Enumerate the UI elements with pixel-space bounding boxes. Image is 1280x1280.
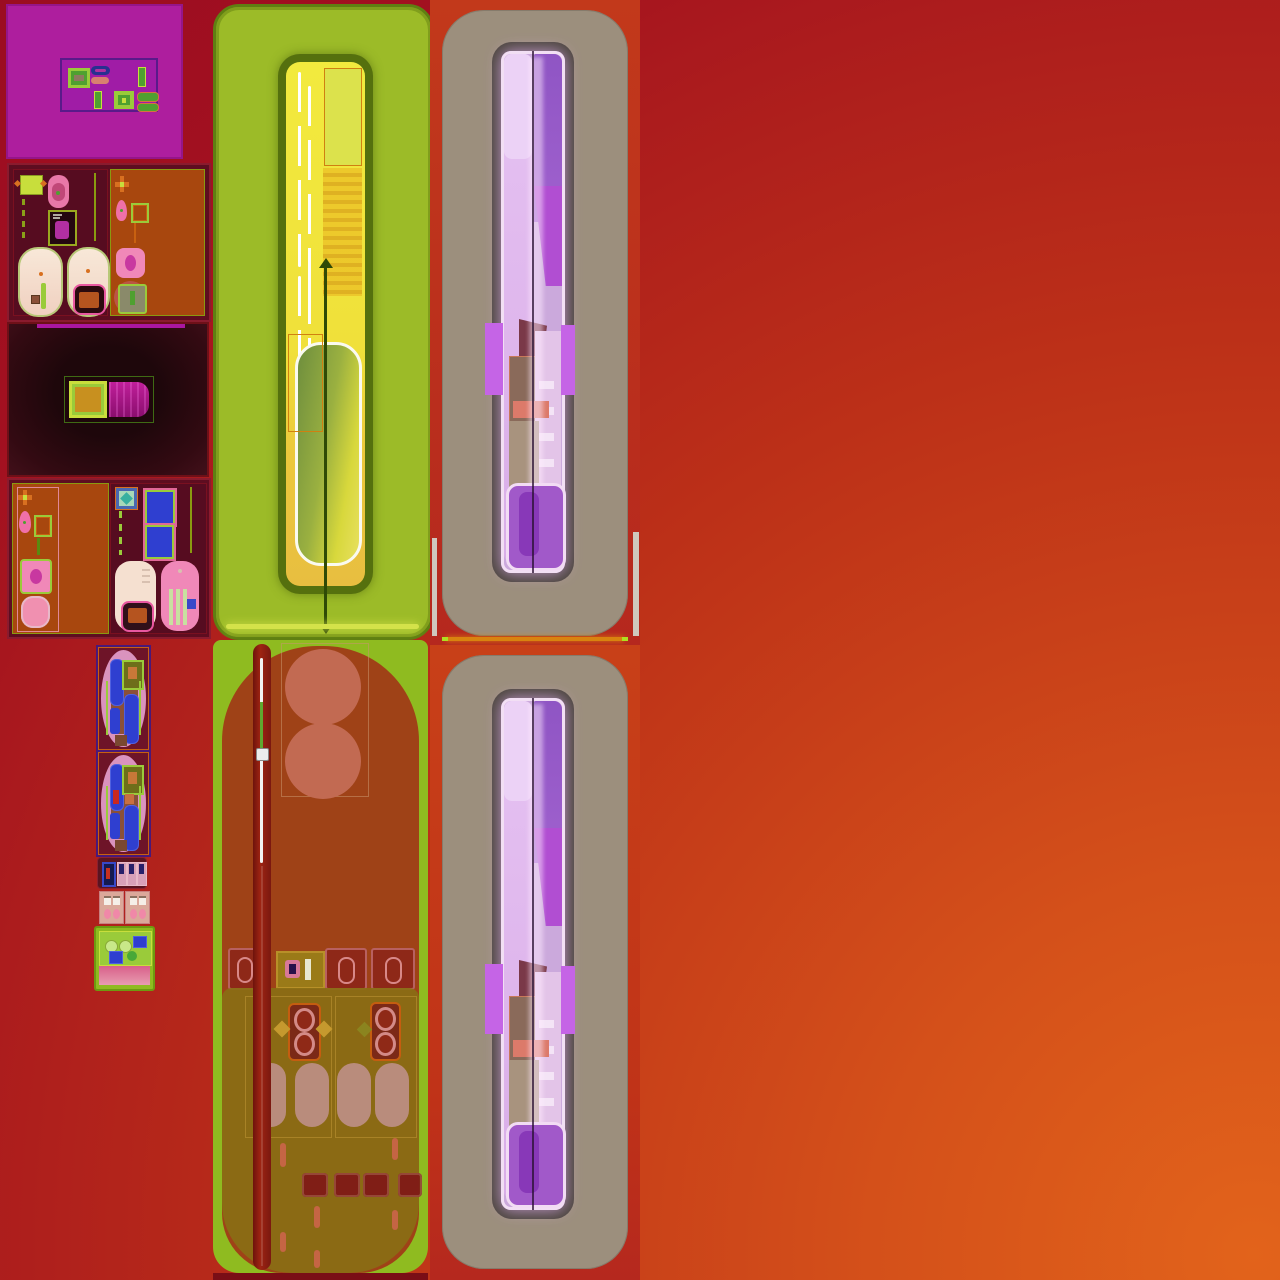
silver-edge-strip	[432, 538, 437, 636]
stick-track-faint	[261, 866, 263, 1266]
cap-rod	[519, 1131, 539, 1193]
outline-box-icon	[131, 203, 149, 223]
stick-green-segment	[260, 702, 263, 748]
panel-glow-line	[226, 624, 419, 629]
appliance-capsule-1	[18, 247, 63, 317]
concentric-core	[122, 98, 126, 103]
text-line	[53, 214, 62, 216]
slider-track-line[interactable]	[308, 86, 311, 316]
sprite-dial-panel	[99, 891, 124, 924]
panel2-left-section	[12, 483, 109, 634]
square-button-face	[71, 71, 87, 85]
module-slot	[130, 291, 135, 305]
panel2-right-section	[110, 483, 207, 634]
stick-handle[interactable]	[256, 748, 269, 761]
bar-wing-left	[485, 323, 503, 395]
leaf-dot	[23, 521, 26, 524]
magenta-widget-panel	[6, 4, 183, 159]
green-rail	[106, 681, 108, 735]
dark-key[interactable]	[334, 1173, 360, 1197]
vertical-rule	[94, 173, 96, 241]
leaf-icon	[116, 200, 127, 221]
dark-toggle-panel	[7, 322, 209, 477]
mini-readout	[113, 896, 120, 905]
bar-wing-right	[561, 966, 575, 1034]
salmon-circle	[285, 649, 361, 725]
gray-oval-key[interactable]	[295, 1063, 329, 1127]
slot-core	[139, 864, 144, 874]
square-button-icon[interactable]	[68, 68, 90, 88]
green-rail	[139, 681, 141, 735]
appliance-capsule-3	[115, 561, 156, 631]
pill-stripe	[95, 69, 106, 72]
bar-bottom-cap	[506, 483, 566, 571]
dark-key[interactable]	[363, 1173, 389, 1197]
green-bar-icon-2	[94, 91, 102, 109]
pink-knob[interactable]	[139, 909, 146, 919]
pink-capsule-small	[21, 596, 50, 628]
red-stick-slider[interactable]	[253, 644, 271, 1270]
cap-rod	[519, 492, 539, 556]
appliance-capsule-4	[161, 561, 199, 631]
plus-core	[120, 182, 124, 187]
oval-outline	[338, 957, 355, 984]
orange-chip	[125, 794, 134, 804]
green-slot[interactable]	[41, 283, 46, 309]
divider-glow-line	[446, 637, 624, 641]
dash-mark	[280, 1232, 286, 1252]
text-line	[53, 217, 60, 219]
blob-oval	[125, 255, 136, 271]
blue-chip	[109, 951, 123, 964]
brown-chip	[115, 840, 127, 851]
gray-oval-key[interactable]	[337, 1063, 371, 1127]
double-knob-control[interactable]	[370, 1002, 401, 1061]
magenta-chip	[55, 221, 69, 239]
module-core	[128, 772, 137, 784]
board-bottom	[99, 966, 150, 985]
toggle-switch[interactable]	[65, 377, 153, 422]
dark-widget-box	[48, 210, 77, 246]
green-pill-icon-2	[137, 103, 159, 112]
silver-edge-strip	[633, 532, 639, 636]
atlas-stage	[0, 0, 1280, 1280]
concentric-inner	[118, 95, 130, 105]
bar-center-line	[532, 698, 534, 1210]
magenta-top-line	[37, 324, 185, 328]
pink-slot	[127, 862, 137, 886]
red-pin	[106, 868, 110, 879]
bar-left-cap	[504, 701, 532, 801]
sprite-dial-panel	[125, 891, 150, 924]
capsule-dot	[56, 191, 60, 195]
concentric-square-icon[interactable]	[114, 91, 134, 109]
violet-bar	[501, 51, 565, 573]
appliance-capsule-2	[67, 247, 110, 317]
orange-outline-box	[288, 334, 323, 432]
pink-blob-button[interactable]	[116, 248, 145, 278]
toggle-knob[interactable]	[69, 381, 107, 418]
lime-slider-panel	[213, 4, 434, 640]
pink-knob[interactable]	[104, 909, 111, 919]
salmon-circle	[285, 723, 361, 799]
appliance-sprite-panel-1	[7, 163, 211, 322]
appliance-sprite-panel-2	[7, 478, 211, 639]
pink-knob[interactable]	[113, 909, 120, 919]
panel1-left-section	[13, 169, 108, 316]
dark-key[interactable]	[398, 1173, 422, 1197]
mini-readout	[104, 896, 111, 905]
slider-track-line[interactable]	[298, 72, 301, 267]
capsule-door[interactable]	[121, 601, 154, 632]
cell-oval	[371, 948, 415, 990]
oval-outline	[237, 957, 253, 983]
sprite-green-board	[94, 926, 155, 991]
indicator-dot	[86, 269, 90, 273]
bar-wing-right	[561, 325, 575, 395]
vertical-rule	[37, 538, 40, 555]
scroll-axis[interactable]	[324, 268, 327, 626]
widget-box	[60, 58, 158, 112]
deck-bottom-strip	[213, 1273, 428, 1280]
plus-core	[23, 495, 27, 500]
sprite-card-b	[96, 750, 151, 857]
violet-bar-frame	[492, 42, 574, 582]
board-top	[99, 931, 152, 966]
slot-core	[119, 864, 124, 874]
green-dot	[127, 951, 137, 961]
tan-body	[442, 10, 628, 636]
blue-slot-button-2[interactable]	[145, 525, 174, 559]
stripe-group	[169, 589, 173, 625]
cell-oval	[325, 948, 367, 990]
arrow-up-icon[interactable]	[319, 258, 333, 268]
blue-chip	[110, 813, 120, 839]
vertical-rule	[134, 223, 136, 243]
bar-center-line	[532, 51, 534, 573]
button-blob	[30, 569, 42, 584]
chip-core	[289, 964, 296, 974]
vent-ticks	[142, 569, 150, 571]
green-rail	[106, 786, 108, 840]
pink-slot	[137, 862, 147, 886]
double-knob-control[interactable]	[288, 1003, 321, 1061]
sprite-card-a	[96, 645, 151, 752]
brown-key	[31, 295, 40, 304]
slot-core	[129, 864, 134, 874]
hatch-texture	[323, 168, 362, 296]
olive-deck-lower	[222, 988, 419, 1273]
dashed-line	[119, 511, 122, 555]
violet-bar	[501, 698, 565, 1210]
bar-bottom-cap	[506, 1122, 566, 1208]
dash-mark	[280, 1143, 286, 1167]
teal-diamond-chip	[115, 487, 138, 510]
tan-body	[442, 655, 628, 1269]
dash-mark	[392, 1138, 398, 1160]
dash-mark	[314, 1250, 320, 1268]
leaf-icon	[19, 511, 31, 533]
glow-tip	[622, 637, 628, 641]
dash-mark	[314, 1206, 320, 1228]
pink-slot	[117, 862, 127, 886]
dashed-line	[22, 199, 25, 241]
yellow-subpanel	[324, 68, 362, 166]
green-pill-icon	[137, 92, 159, 102]
bar-left-cap	[504, 54, 532, 159]
blue-chip	[133, 936, 147, 948]
sprite-slot-strip	[97, 857, 147, 889]
glow-tip	[442, 637, 448, 641]
toggle-knob-core	[75, 387, 101, 412]
mini-readout	[139, 896, 146, 905]
panel1-right-section	[110, 169, 205, 316]
pink-knob[interactable]	[130, 909, 137, 919]
blue-chip	[110, 708, 120, 734]
square-button-core	[74, 75, 84, 81]
red-slot	[113, 790, 119, 804]
gray-module	[118, 284, 147, 314]
violet-bar-frame	[492, 689, 574, 1219]
readout-chip	[285, 960, 300, 978]
door-window	[128, 608, 147, 623]
gray-oval-key[interactable]	[375, 1063, 409, 1127]
capsule-door[interactable]	[73, 284, 106, 315]
dash-mark	[392, 1210, 398, 1230]
brown-chip	[115, 735, 127, 746]
blue-socket	[102, 862, 116, 887]
readout-bar	[305, 959, 311, 980]
outline-box-icon	[34, 515, 52, 537]
vertical-rule	[190, 487, 192, 553]
module-core	[128, 667, 137, 679]
oval-outline	[385, 957, 402, 984]
bar-wing-left	[485, 964, 503, 1034]
slider-yellow-core	[286, 62, 365, 586]
blue-chip	[187, 599, 196, 609]
mini-readout	[130, 896, 137, 905]
navy-pill-icon	[91, 66, 110, 75]
green-rail	[139, 786, 141, 840]
pink-capsule-small	[48, 175, 69, 208]
brown-control-deck	[213, 640, 428, 1280]
indicator-dot	[178, 569, 182, 573]
door-window	[79, 292, 99, 308]
salmon-pill-icon	[91, 77, 109, 84]
tan-violet-bar-panel-top	[430, 0, 640, 645]
toggle-track[interactable]	[109, 382, 149, 417]
indicator-dot	[39, 272, 43, 276]
leaf-dot	[120, 209, 123, 212]
tan-violet-bar-panel-bottom	[430, 645, 640, 1280]
green-bar-icon	[138, 67, 146, 87]
blue-slot-button[interactable]	[145, 490, 175, 525]
cell-readout	[276, 951, 325, 989]
pink-square-button[interactable]	[20, 559, 52, 594]
dark-key[interactable]	[302, 1173, 328, 1197]
lime-chip-icon	[20, 175, 43, 195]
